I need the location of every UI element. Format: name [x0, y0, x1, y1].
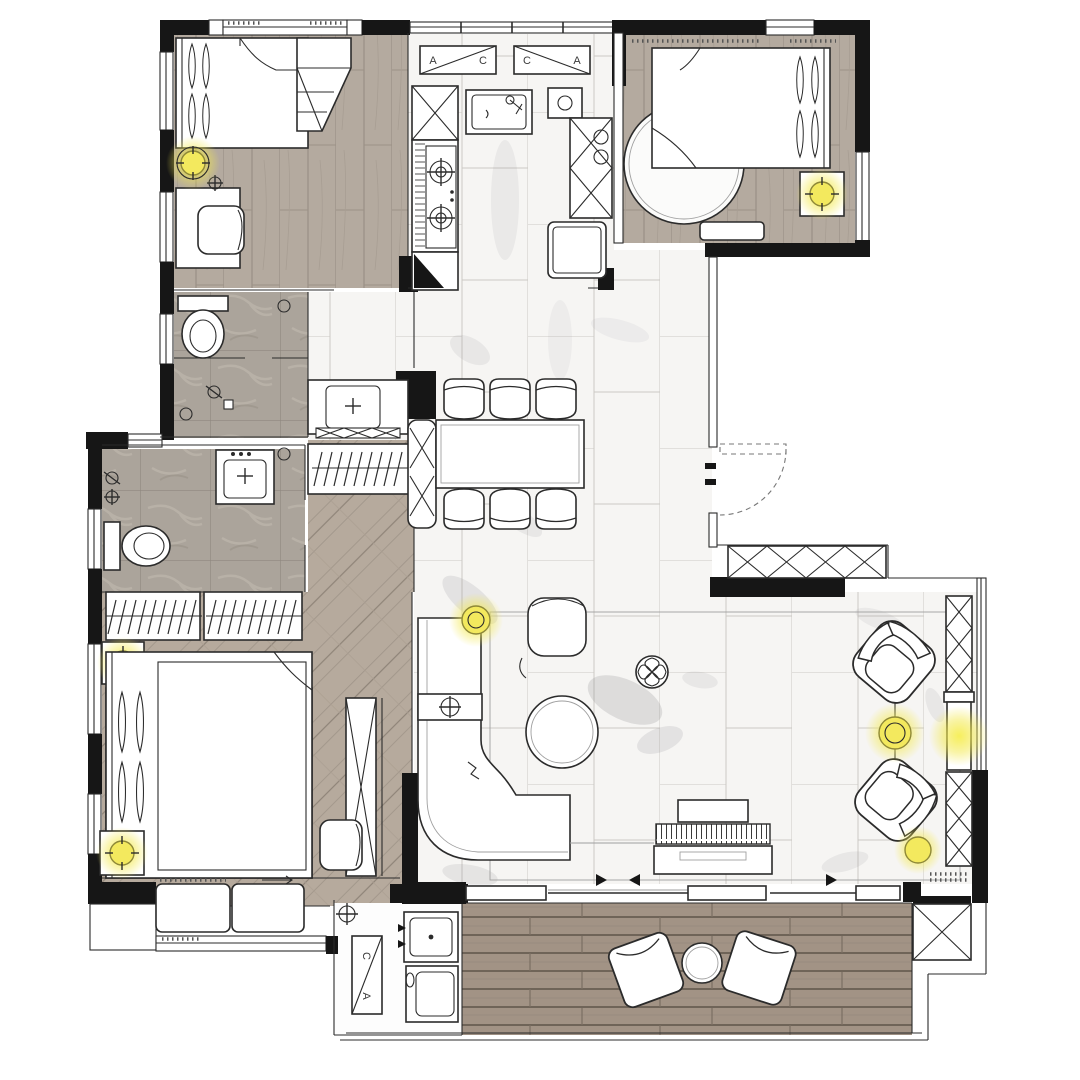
desk-chair: [198, 206, 244, 254]
sill-step: [90, 904, 156, 950]
tag-letter: A: [429, 55, 437, 67]
dining-chair: [536, 489, 576, 529]
window-tag-laundry: C A: [352, 936, 382, 1014]
tag-letter: A: [360, 992, 372, 1000]
bed: [176, 38, 308, 148]
window-bedroom1-top: [223, 20, 347, 35]
dining-chair: [536, 379, 576, 419]
counter-box: [548, 88, 582, 118]
floor-plan-drawing: C A A C C A: [0, 0, 1080, 1080]
tag-letter: C: [523, 55, 531, 67]
entry: [720, 444, 886, 578]
dining-chair: [444, 489, 484, 529]
tag-letter: C: [479, 55, 487, 67]
window-bath-lower-left: [88, 509, 101, 569]
sideboard: [408, 420, 436, 528]
chair: [320, 820, 362, 870]
wall-column: [209, 20, 223, 35]
nightstand-lower: [96, 827, 148, 879]
dining-table: [436, 420, 584, 488]
window-bedroom1-left2: [160, 192, 173, 262]
toilet: [104, 522, 170, 570]
washing-machine: [406, 966, 458, 1022]
vanity-drawer: [316, 428, 400, 438]
soundbar: [656, 824, 770, 844]
dining-chair: [444, 379, 484, 419]
ac-platform: [913, 896, 971, 960]
entry-door: [720, 444, 786, 515]
side-table: [682, 943, 722, 983]
bed: [652, 48, 830, 168]
toilet: [178, 296, 228, 358]
window-kitchen-top: [410, 22, 614, 33]
laundry-sink: [398, 912, 458, 962]
wall-column: [347, 20, 362, 35]
kitchen-sink: [466, 90, 532, 134]
wardrobe: [106, 592, 302, 640]
window-tag-left: A C: [420, 46, 496, 74]
shoe-cabinet: [728, 546, 886, 578]
bedroom1-ceiling-lamp: [166, 136, 220, 190]
wall-kitchen-master: [614, 33, 623, 243]
light-near-sofa: [449, 593, 503, 647]
floor-plan-canvas: C A A C C A: [0, 0, 1080, 1080]
tag-letter: A: [573, 55, 581, 67]
window-tag-right: C A: [514, 46, 590, 74]
niche-glow: [929, 706, 989, 766]
window-master-right: [856, 152, 869, 242]
vanity: [216, 450, 274, 504]
wall-master-bottom: [705, 243, 868, 257]
fridge: [548, 222, 606, 278]
closet-corridor: [308, 444, 412, 494]
dining-chair: [490, 379, 530, 419]
window-bath-upper-left: [160, 314, 173, 364]
floor-lamp-mid: [865, 703, 925, 763]
wall-foyer: [709, 257, 717, 447]
stove: [412, 140, 458, 252]
floor-hall-fridge: [598, 250, 712, 290]
corner-cabinet: [412, 252, 458, 290]
ceiling-fan: [636, 656, 668, 688]
bench: [700, 222, 764, 240]
window-bedroom1-left: [160, 52, 173, 130]
tall-cabinets-right: [570, 118, 612, 218]
floor-lamp-lower: [894, 826, 942, 874]
window-bedroom3-south: [156, 936, 326, 951]
tag-letter: C: [360, 952, 372, 960]
window-master-top: [766, 20, 814, 35]
nightstand-with-lamp: [796, 168, 848, 220]
coffee-table: [526, 696, 598, 768]
vanity-hall: [308, 380, 408, 438]
dining-chair: [490, 489, 530, 529]
wall-entry-stub: [710, 577, 845, 597]
